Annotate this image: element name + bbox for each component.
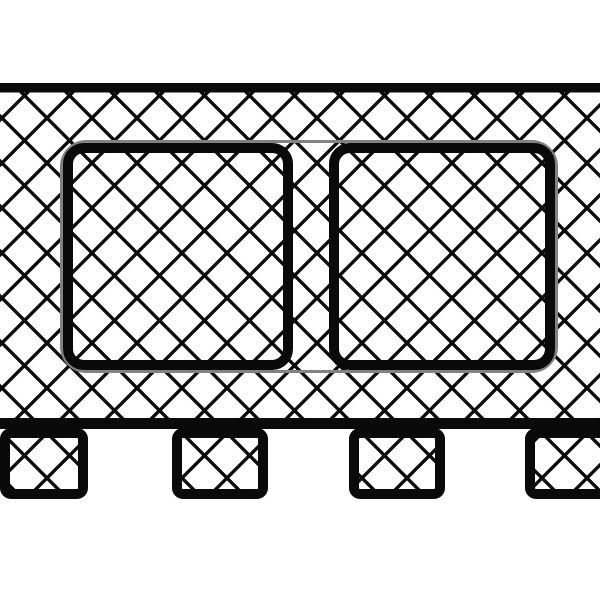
foot-4 xyxy=(530,433,600,494)
foot-2 xyxy=(177,433,263,494)
pallet-cross-section-drawing xyxy=(0,0,600,600)
deck-top-edge xyxy=(0,83,600,93)
foot-1 xyxy=(5,433,83,494)
foot-3 xyxy=(354,433,440,494)
deck-bottom-edge xyxy=(0,418,600,429)
drawing-stage xyxy=(0,0,600,600)
